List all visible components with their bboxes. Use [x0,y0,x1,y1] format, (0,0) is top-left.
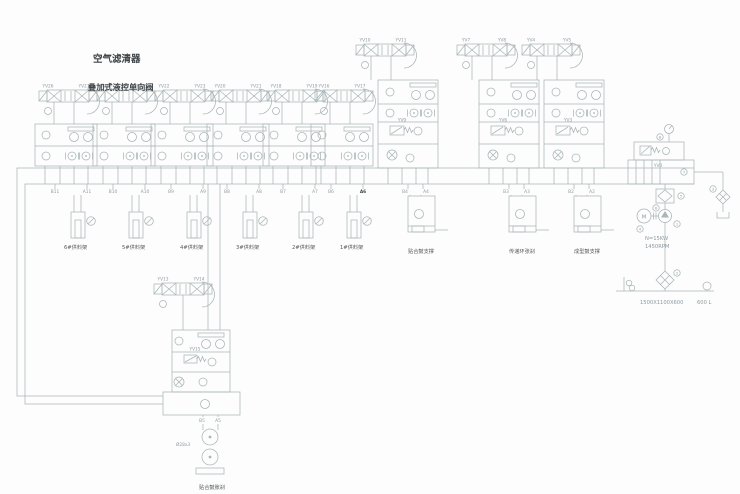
port-circle [84,133,93,142]
left-return-loop [17,168,163,404]
bracket [198,333,224,337]
directional-valve-body [275,90,317,102]
port-circle [513,91,522,100]
item-callout: 4 [637,226,643,232]
pipe-spec-label: Ø28x3 [176,441,190,448]
drum-center [209,436,212,439]
check-valve-seat [579,112,581,114]
valve-tag: YV26 [41,84,53,90]
spring-symbol [505,128,514,133]
cylinder-label: 传递环张刹 [509,247,535,255]
cylinder-rod [303,220,309,238]
port-circle [128,133,137,142]
pipe-line [522,45,530,55]
pipe-line [154,284,162,294]
pipe-line [492,127,503,134]
port-circle [346,133,355,142]
item-callout: 8 [657,134,663,140]
cylinder-rod [75,220,81,238]
check-valve-seat [187,155,189,157]
relief-valve-tag: YV0 [653,163,663,169]
pipe-line [364,218,370,224]
pilot-port-circle [528,62,535,69]
check-valve-box [656,189,674,203]
check-valve-seat [257,155,259,157]
port-circle [270,152,278,160]
valve-tag: YV11 [394,38,406,44]
check-valve-seat [361,155,363,157]
pipe-line [88,218,94,224]
pipe-path [25,184,163,404]
port-label: B3 [503,189,509,195]
check-valve-seat [243,155,245,157]
port-circle [426,91,435,100]
schematic-canvas: YV26YV27B11A116#供料架YV24YV25B10A105#供料架YV… [0,0,740,494]
valve-tag: YV15 [188,347,200,353]
drum-base [196,468,224,474]
port-label: B2 [568,189,574,195]
cylinder-label: 4#供料架 [180,243,203,251]
bracket [296,127,322,131]
directional-valve-body [323,90,365,102]
port-circle [487,109,495,117]
port-circle [360,133,369,142]
pilot-port-circle [463,62,470,69]
callout-number: 4 [639,227,642,231]
cylinder-body [243,212,257,238]
pilot-port-circle [160,301,167,308]
cylinder-rod [513,226,525,232]
cylinder-rod [578,226,590,232]
tall-valve-stack: YV7YV8YV6B3A3传递环张刹 [457,38,549,256]
item-callout: 1 [674,221,680,227]
pipe-line [204,218,210,224]
directional-valve-body [163,90,205,102]
cylinder-body [347,212,361,238]
gauge-circle [415,210,424,219]
check-valve-seat [593,112,595,114]
port-label: B5 [199,418,205,424]
port-circle [214,152,222,160]
port-label: B6 [328,189,334,195]
item-callout: 2 [674,270,680,276]
port-label: A2 [589,189,595,195]
motor-symbol: M [642,214,646,220]
check-valve-seat [201,155,203,157]
valve-tag: YV18 [269,84,281,90]
spring-symbol [651,148,660,153]
item-callout: 3 [710,186,716,192]
port-label: A5 [215,418,221,424]
feeder-valve-group: YV22YV23B9A94#供料架 [151,84,216,252]
feeder-valve-group: YV26YV27B11A116#供料架 [35,84,100,252]
port-label: A7 [312,189,318,195]
valve-tag: YV17 [353,84,365,90]
gauge-circle [516,210,525,219]
cylinder-rod [133,220,139,238]
port-circle [298,133,307,142]
port-label: A10 [141,189,150,195]
bracket [68,127,94,131]
gauge-circle [581,210,590,219]
valve-tag: YV10 [358,38,370,44]
tank-size-label: 1500X1100X600 [640,300,683,306]
level-gauge [629,285,635,291]
port-circle [406,154,414,162]
port-circle [592,91,601,100]
item-callout: 7 [681,169,687,175]
port-circle [578,91,587,100]
pipe-line [557,127,568,134]
valve-tag: YV19 [305,84,317,90]
port-label: B8 [224,189,230,195]
valve-tag: YV9 [397,118,407,124]
check-valve-seat [347,155,349,157]
pilot-port-circle [161,108,168,115]
port-circle [242,133,251,142]
base-block [163,392,240,415]
item-callout: 5 [678,193,684,199]
air-filter-title: 空气滤清器 [93,53,141,65]
tank-symbol [717,212,729,218]
directional-valve-body [465,44,507,56]
port-circle [414,127,422,135]
feeder-valve-group: YV18YV19B7A72#供料架 [263,84,328,252]
bracket [126,127,152,131]
pipe-line [315,91,323,101]
spring-symbol [404,128,413,133]
cylinder-body [129,212,143,238]
pipe-line [356,45,364,55]
cylinder-label: 贴合鼓支撑 [408,247,434,255]
pilot-port-circle [273,108,280,115]
port-circle [412,91,421,100]
port-circle [552,88,560,96]
bracket [344,127,370,131]
port-circle [100,131,108,139]
diagram-titles: 空气滤清器叠加式液控单向阀 [88,53,154,92]
check-valve-seat [71,155,73,157]
port-circle [270,131,278,139]
bracket [576,83,602,87]
pilot-port-circle [217,108,224,115]
cylinder-rod [351,220,357,238]
callout-number: 5 [680,194,682,198]
port-circle [42,152,50,160]
tank-volume-label: 600 L [697,300,712,306]
pilot-port-circle [362,62,369,69]
port-label: A9 [200,189,206,195]
port-circle [42,131,50,139]
port-label: A6 [360,189,366,195]
valve-tag: YV20 [213,84,225,90]
check-valve-seat [413,112,415,114]
port-label: B11 [51,189,60,195]
port-circle [158,131,166,139]
pipe-line [39,91,47,101]
feeder-valve-group: YV24YV25B10A105#供料架 [93,84,158,252]
directional-valve-body [219,90,261,102]
pipe-line [641,146,650,154]
callout-number: 3 [712,187,714,191]
cylinder-label: 5#供料架 [122,243,145,251]
pipe-line [146,218,152,224]
stacked-check-valve-title: 叠加式液控单向阀 [88,82,154,92]
callout-number: 7 [683,170,685,174]
port-circle [507,154,515,162]
directional-valve-body [162,283,204,295]
check-valve-seat [129,155,131,157]
port-circle [100,152,108,160]
cylinder-rod [247,220,253,238]
cylinder-body [299,212,313,238]
valve-tag: YV16 [317,84,329,90]
port-label: A8 [256,189,262,195]
port-circle [199,378,207,386]
port-circle [527,91,536,100]
port-label: A3 [524,189,530,195]
feeder-valve-group: YV20YV21B8A83#供料架 [207,84,272,252]
check-valve-diamond [658,190,672,202]
port-label: A4 [423,189,429,195]
port-circle [208,358,216,366]
check-valve-seat [85,155,87,157]
check-valve-seat [143,155,145,157]
thermometer [626,280,632,286]
power-unit: YV0MN=15KW1450RPM1500X1100X600600 L [616,125,730,307]
port-circle [214,131,222,139]
cylinder-rod [412,226,424,232]
port-label: B4 [402,189,408,195]
check-valve-seat [313,155,315,157]
bracket [511,83,537,87]
cylinder-label: 贴合鼓胀刹 [199,483,225,491]
port-circle [552,109,560,117]
cylinder-rod [191,220,197,238]
item-callout: 6 [653,205,659,211]
main-manifold [30,168,694,184]
bracket [410,83,436,87]
pilot-port-circle [45,108,52,115]
pipe-line [391,127,402,134]
pilot-port-circle [321,108,328,115]
pilot-port-circle [103,108,110,115]
pipe-line [185,356,196,362]
cylinder-body [187,212,201,238]
valve-tag: YV13 [156,277,168,283]
valve-tag: YV4 [526,38,536,44]
pipe-line [457,45,465,55]
valve-tag: YV3 [563,118,573,124]
port-circle [386,88,394,96]
port-circle [663,148,670,155]
port-label: B9 [168,189,174,195]
cylinder-label: 3#供料架 [236,243,259,251]
spring-symbol [570,128,579,133]
port-circle [202,340,211,349]
pipe-line [316,218,322,224]
port-circle [186,133,195,142]
check-valve-seat [427,112,429,114]
port-circle [142,133,151,142]
port-label: A11 [83,189,92,195]
spring-symbol [197,357,206,362]
check-valve-seat [299,155,301,157]
port-circle [386,109,394,117]
callout-number: 6 [655,206,658,210]
directional-valve-body [47,90,89,102]
valve-tag: YV7 [461,38,471,44]
directional-valve-body [364,44,406,56]
valve-tag: YV23 [193,84,205,90]
gauge-needle [669,126,672,130]
callout-number: 2 [676,271,678,275]
port-circle [175,337,183,345]
cylinder-label: 6#供料架 [64,243,87,251]
port-circle [70,133,79,142]
hydraulic-schematic-page: YV26YV27B11A116#供料架YV24YV25B10A105#供料架YV… [0,0,740,494]
port-label: B7 [280,189,286,195]
port-circle [312,133,321,142]
port-circle [216,340,225,349]
port-circle [487,88,495,96]
feeder-valve-group: YV16YV17B6A61#供料架 [311,84,376,252]
motor-speed-label: 1450RPM [645,244,669,250]
valve-tag: YV5 [562,38,572,44]
valve-tag: YV22 [157,84,169,90]
cylinder-label: 成型鼓支撑 [574,247,600,255]
port-circle [201,400,210,409]
callout-number: 8 [659,135,662,139]
drum-center [209,456,212,459]
valve-tag: YV6 [498,118,508,124]
bracket [184,127,210,131]
port-circle [515,127,523,135]
filler-cap [703,282,711,290]
valve-tag: YV14 [192,277,204,283]
directional-valve-body [530,44,572,56]
check-valve-seat [514,112,516,114]
pipe-path [17,168,163,396]
pump-arrow [661,211,669,218]
port-circle [158,152,166,160]
valve-tag: YV21 [249,84,261,90]
check-valve-seat [528,112,530,114]
pipe-line [260,218,266,224]
port-circle [572,154,580,162]
valve-tag: YV8 [497,38,507,44]
callout-number: 1 [676,222,678,226]
cylinder-label: 1#供料架 [340,243,363,251]
cylinder-label: 2#供料架 [292,243,315,251]
cylinder-body [71,212,85,238]
port-circle [580,127,588,135]
port-label: B10 [109,189,118,195]
bracket [240,127,266,131]
